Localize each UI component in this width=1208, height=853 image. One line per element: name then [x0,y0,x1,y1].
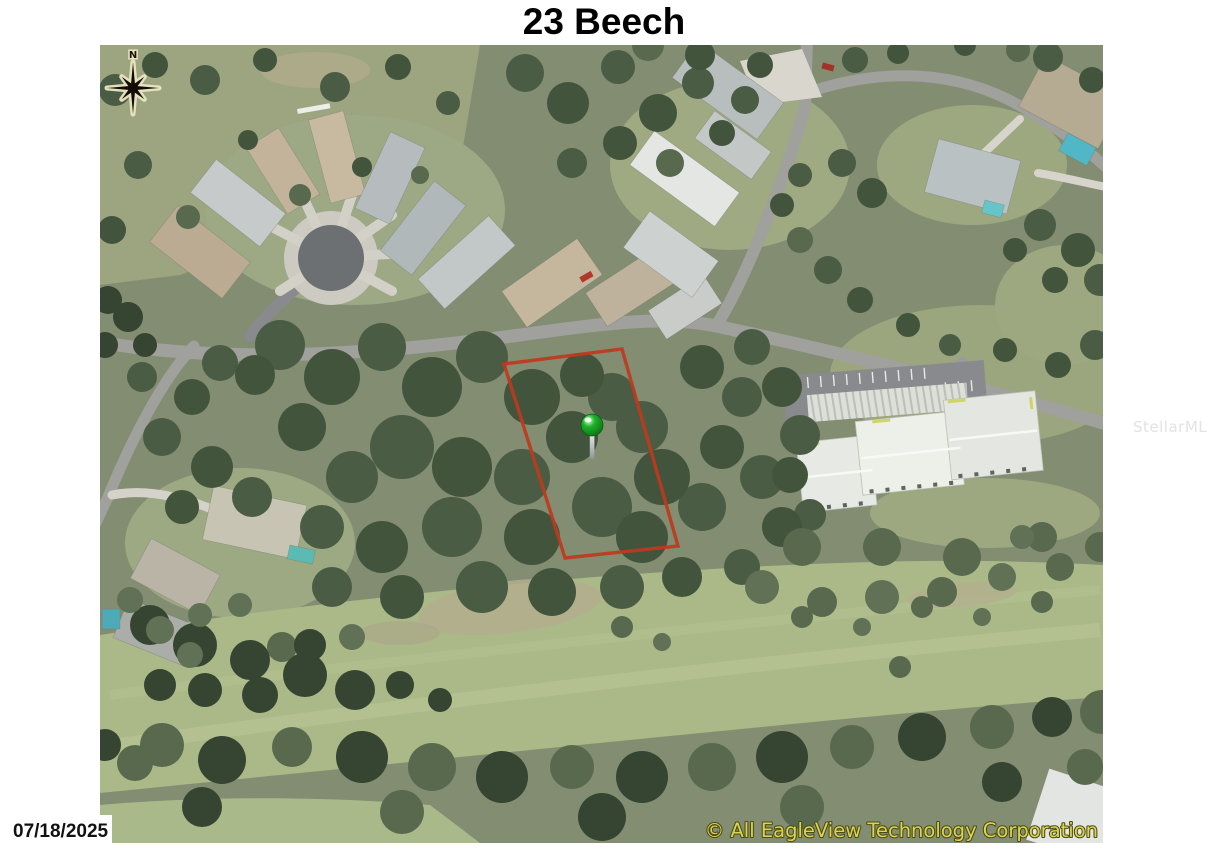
stellarmls-watermark: StellarMLS [1133,418,1208,436]
aerial-photo: N © All EagleView Technology Corporation [100,45,1103,843]
aerial-photo-canvas: N © All EagleView Technology Corporation [100,45,1103,843]
copyright-notice: © All EagleView Technology Corporation [705,819,1098,842]
mls-photo-page: 23 Beech [0,0,1208,853]
date-stamp: 07/18/2025 [0,815,112,848]
page-title: 23 Beech [0,0,1208,44]
compass-north-label: N [129,50,137,61]
date-stamp-text: 07/18/2025 [13,821,108,843]
